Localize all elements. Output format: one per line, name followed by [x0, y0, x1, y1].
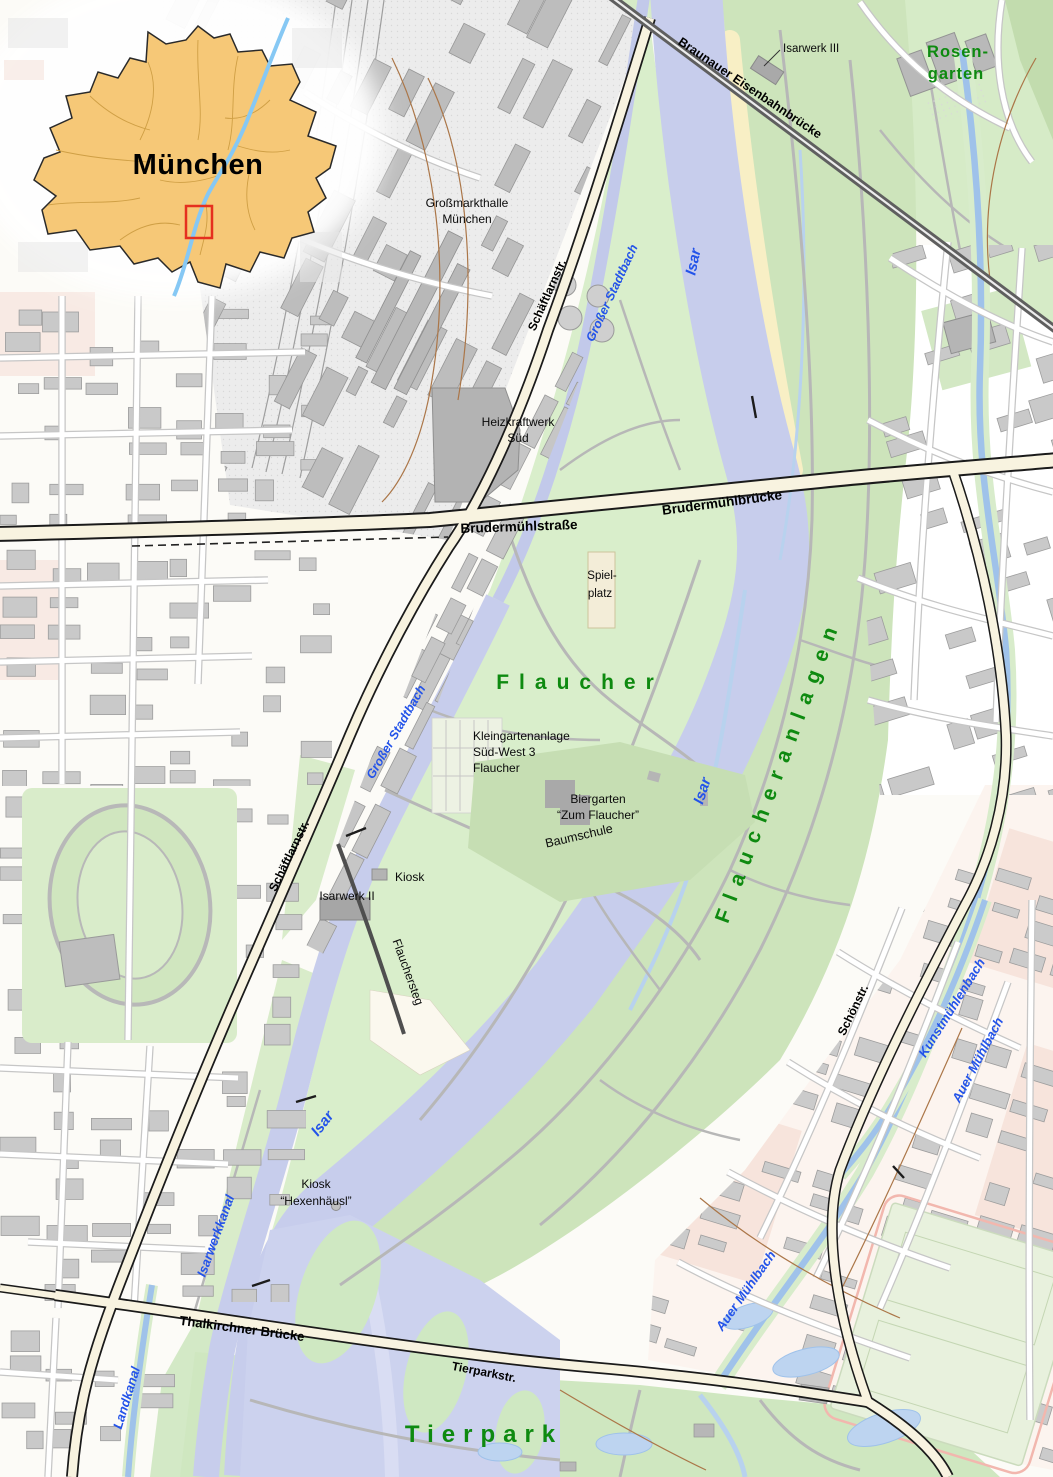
label-kleingarten-2: Süd-West 3	[473, 745, 536, 759]
label-rosengarten-2: garten	[928, 65, 984, 83]
label-isarwerk3: Isarwerk III	[783, 43, 839, 55]
inset-map: München	[0, 0, 383, 297]
kiosk-building	[372, 869, 387, 880]
map-svg[interactable]: Isarwerk III Großmarkthalle München Heiz…	[0, 0, 1053, 1477]
label-kleingarten-3: Flaucher	[473, 761, 520, 775]
label-rosengarten-1: Rosen-	[927, 43, 989, 61]
label-biergarten-1: Biergarten	[570, 792, 625, 806]
label-hexenhaeusl-1: Kiosk	[301, 1177, 331, 1191]
label-grossmarkthalle-1: Großmarkthalle	[426, 196, 509, 210]
label-grossmarkthalle-2: München	[442, 212, 491, 226]
label-tierpark: Tierpark	[405, 1421, 563, 1448]
label-kleingarten-1: Kleingartenanlage	[473, 729, 570, 743]
label-spielplatz-2: platz	[588, 588, 613, 600]
label-kiosk: Kiosk	[395, 870, 425, 884]
inset-city-label: München	[133, 149, 264, 181]
label-flaucher: Flaucher	[496, 671, 664, 694]
map-canvas[interactable]: Isarwerk III Großmarkthalle München Heiz…	[0, 0, 1053, 1477]
label-heizkraftwerk-1: Heizkraftwerk	[482, 415, 556, 429]
label-spielplatz-1: Spiel-	[587, 570, 617, 582]
label-heizkraftwerk-2: Süd	[507, 431, 528, 445]
label-biergarten-2: “Zum Flaucher”	[557, 808, 639, 822]
label-isarwerk2: Isarwerk II	[319, 889, 374, 903]
label-hexenhaeusl-2: “Hexenhäusl”	[280, 1194, 351, 1208]
